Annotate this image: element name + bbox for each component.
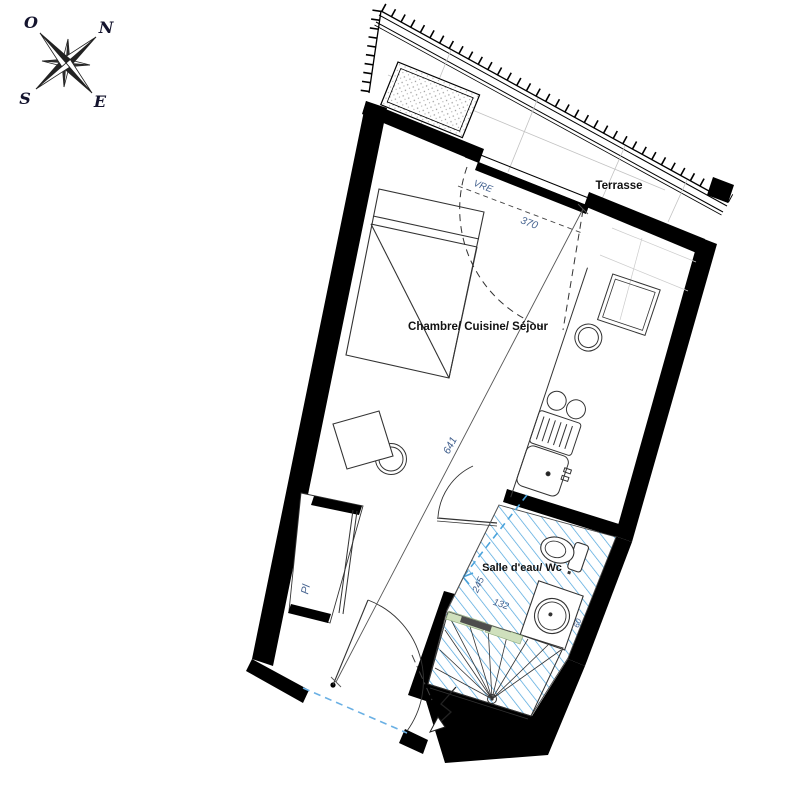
compass-letter-e: E xyxy=(93,92,107,111)
entry-door-arc xyxy=(368,600,423,731)
compass-major-points xyxy=(36,33,96,93)
compass-rose: N O S E xyxy=(19,13,114,111)
room-length-dim: 641 xyxy=(441,435,460,456)
entry-opening-dashed xyxy=(303,688,407,733)
terrace: Terrasse xyxy=(365,8,734,223)
kitchen-round-sink xyxy=(571,320,605,354)
wall-bottom-left xyxy=(246,659,309,703)
bathroom-label: Salle d'eau/ Wc xyxy=(482,562,562,574)
bed xyxy=(346,189,484,378)
compass-letter-o: O xyxy=(24,13,38,32)
sink-drainer xyxy=(529,410,582,456)
floor-plan-svg: N O S E Terrasse xyxy=(0,0,804,800)
floor-plan-page: N O S E Terrasse xyxy=(0,0,804,800)
terrace-railing-left xyxy=(369,11,381,93)
terrace-label: Terrasse xyxy=(595,180,642,192)
wall-bottom-stub xyxy=(399,729,428,754)
entry-door-leaf xyxy=(333,600,368,685)
wall-top-right xyxy=(584,192,705,254)
cooktop-burners xyxy=(544,389,589,422)
bathroom-door xyxy=(437,466,497,526)
closet: Pl xyxy=(288,493,363,623)
main-room-label: Chambre/ Cuisine/ Séjour xyxy=(408,321,548,333)
kitchen-sink xyxy=(515,444,575,499)
bathroom-door-arc xyxy=(438,466,473,517)
compass-letter-n: N xyxy=(98,18,115,37)
bathroom-door-leaf xyxy=(437,518,497,523)
bay-width-dim: 370 xyxy=(519,214,540,232)
table xyxy=(333,411,393,469)
compass-letter-s: S xyxy=(19,89,31,108)
